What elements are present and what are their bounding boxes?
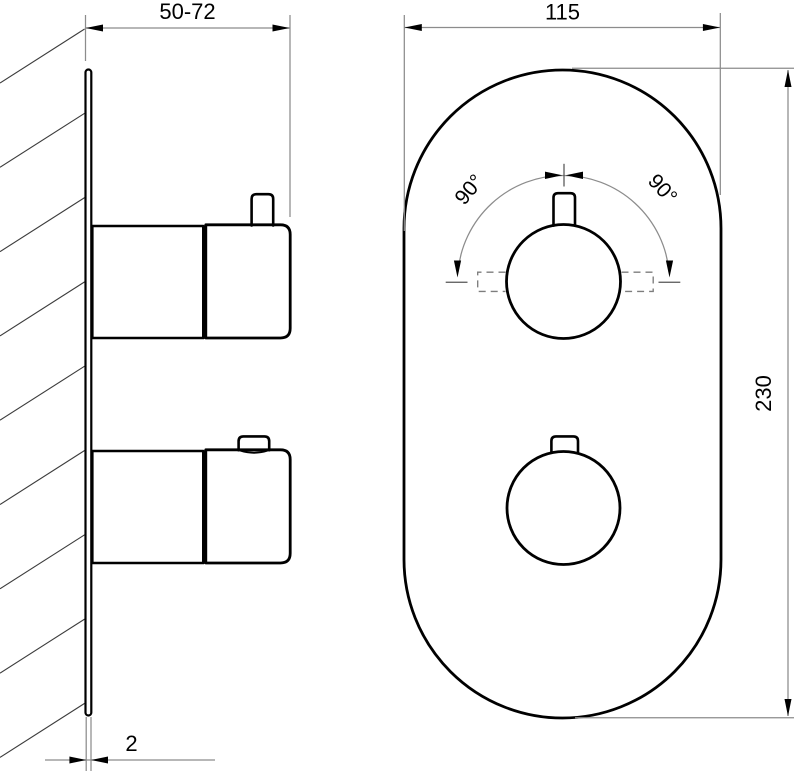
thermostat-knob-front bbox=[507, 225, 621, 339]
technical-drawing: 50-72 2 bbox=[0, 0, 800, 771]
valve-body-top-side bbox=[92, 226, 203, 338]
front-view: 90° 90° 115 230 bbox=[404, 0, 794, 718]
thermostat-knob-stem-front bbox=[554, 193, 576, 225]
knob-top-stem-side bbox=[252, 194, 274, 225]
plate-thickness-label: 2 bbox=[125, 731, 137, 756]
plate-width-label: 115 bbox=[545, 0, 580, 25]
volume-knob-stem-front bbox=[551, 436, 578, 451]
side-view: 50-72 2 bbox=[0, 0, 290, 771]
volume-knob-front bbox=[507, 452, 620, 565]
knob-bottom-side bbox=[206, 450, 290, 563]
cover-plate-front bbox=[404, 70, 721, 718]
dim-depth-range: 50-72 bbox=[86, 0, 291, 217]
dim-plate-thickness: 2 bbox=[45, 717, 215, 771]
valve-body-bottom-side bbox=[92, 451, 203, 563]
dim-plate-height: 230 bbox=[572, 68, 794, 717]
mounting-plate-side bbox=[86, 70, 92, 716]
knob-bottom-stem-side bbox=[239, 436, 270, 450]
rotation-right-label: 90° bbox=[643, 170, 681, 209]
rotation-annotation: 90° 90° bbox=[446, 164, 682, 292]
wall-hatching bbox=[0, 29, 85, 757]
depth-range-label: 50-72 bbox=[159, 0, 215, 24]
plate-height-label: 230 bbox=[751, 375, 776, 412]
rotation-left-label: 90° bbox=[451, 170, 489, 209]
handle-position-left-dashed bbox=[478, 272, 506, 291]
knob-top-side bbox=[206, 225, 290, 338]
handle-position-right-dashed bbox=[622, 272, 654, 291]
